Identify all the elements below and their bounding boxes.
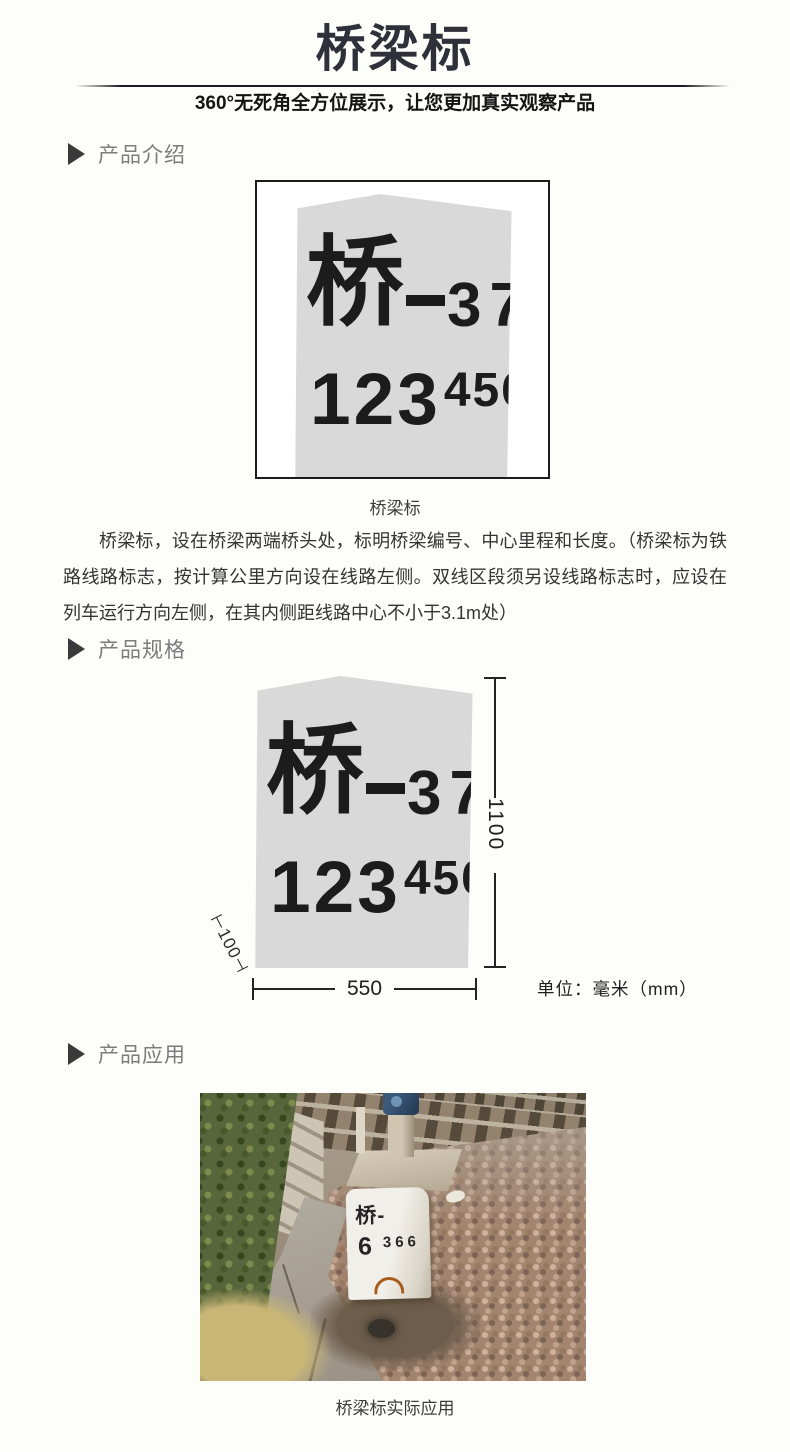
photo-marker-glyph: 桥-	[355, 1199, 386, 1230]
section-header-intro: 产品介绍	[68, 141, 186, 167]
application-photo: 桥- 6 366	[200, 1093, 586, 1381]
width-dimension-line: 550	[252, 978, 477, 1000]
marker-dash: —	[366, 783, 405, 794]
marker-mileage-row: 123 456	[270, 861, 490, 914]
section-header-spec: 产品规格	[68, 636, 186, 662]
marker-mileage-sup: 456	[404, 861, 490, 896]
dimension-tick	[475, 978, 477, 1000]
photo-bridge-marker-stone: 桥- 6 366	[346, 1187, 432, 1300]
photo-marker-number-big: 6	[358, 1232, 373, 1261]
marker-dash: —	[406, 295, 445, 306]
section-label-spec: 产品规格	[98, 634, 186, 664]
intro-figure-caption: 桥梁标	[0, 494, 790, 519]
marker-mileage-sup: 456	[444, 373, 530, 408]
marker-mileage-row: 123 456	[310, 373, 530, 426]
dimension-segment	[494, 679, 496, 798]
bridge-marker-drawing: 桥 — 37 123 456	[293, 194, 516, 479]
photo-marker-numbers: 6 366	[358, 1231, 421, 1262]
photo-white-post	[356, 1107, 365, 1153]
intro-paragraph: 桥梁标，设在桥梁两端桥头处，标明桥梁编号、中心里程和长度。（桥梁标为铁路线路标志…	[63, 523, 727, 631]
bridge-marker-spec-drawing: 桥 — 37 123 456	[253, 676, 477, 968]
height-dimension-line: 1100	[484, 677, 506, 968]
marker-top-row: 桥 — 37	[306, 235, 532, 329]
page-subtitle: 360°无死角全方位展示，让您更加真实观察产品	[0, 92, 790, 116]
photo-dry-grass	[200, 1281, 340, 1381]
marker-glyph: 桥	[306, 235, 404, 329]
marker-top-row: 桥 — 37	[266, 723, 492, 817]
photo-rust-stain	[374, 1277, 404, 1295]
photo-marker-number-small: 366	[383, 1233, 420, 1251]
marker-mileage-main: 123	[270, 861, 401, 914]
triangle-bullet-icon	[68, 638, 85, 660]
marker-serial: 37	[407, 770, 492, 817]
page-title: 桥梁标	[0, 20, 790, 78]
dimension-segment	[494, 873, 496, 966]
unit-note: 单位：毫米（mm）	[537, 976, 698, 1001]
width-dimension-value: 550	[335, 978, 394, 1000]
intro-figure-frame: 桥 — 37 123 456	[255, 180, 550, 479]
title-divider	[75, 85, 730, 87]
product-detail-page: 桥梁标 360°无死角全方位展示，让您更加真实观察产品 产品介绍 桥 — 37 …	[0, 0, 790, 1452]
marker-glyph: 桥	[266, 723, 364, 817]
triangle-bullet-icon	[68, 143, 85, 165]
section-header-application: 产品应用	[68, 1041, 186, 1067]
dimension-segment	[394, 988, 475, 990]
triangle-bullet-icon	[68, 1043, 85, 1065]
section-label-intro: 产品介绍	[98, 139, 186, 169]
section-label-application: 产品应用	[98, 1039, 186, 1069]
application-caption: 桥梁标实际应用	[0, 1394, 790, 1419]
marker-serial: 37	[447, 282, 532, 329]
chamfer-dimension-value: ⊢100⊣	[203, 906, 255, 983]
photo-dark-spot	[368, 1319, 395, 1338]
dimension-tick	[484, 966, 506, 968]
dimension-segment	[254, 988, 335, 990]
marker-mileage-main: 123	[310, 373, 441, 426]
height-dimension-value: 1100	[483, 798, 507, 851]
photo-signal-head	[383, 1093, 419, 1115]
